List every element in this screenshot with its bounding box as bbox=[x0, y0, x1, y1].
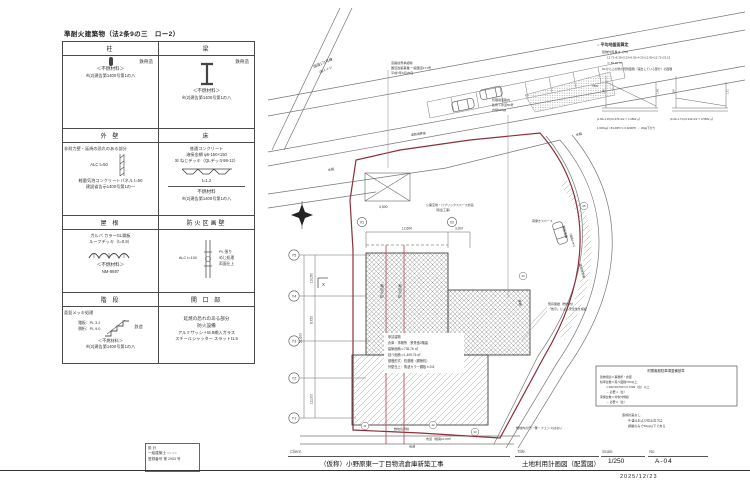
grid-x2: X2 bbox=[450, 220, 454, 224]
note-fence: 敷地内の門・塀・フェンスはない bbox=[516, 425, 562, 430]
building-text-5: 基礎形式：杭基礎（鋼管杭） bbox=[388, 358, 429, 363]
roof-cert: NM-8697 bbox=[64, 269, 157, 275]
client-label: Client. bbox=[290, 449, 302, 454]
dim-left2: 9,720 bbox=[310, 316, 314, 325]
building-text-1: 申請建物 bbox=[388, 334, 402, 339]
avg-l2: 12.72+6.35+5.23+6.92+4.23+12.90+12.72+23… bbox=[607, 56, 671, 60]
pt-23: 23 bbox=[473, 430, 477, 434]
note-sewer-1: 管理用道路内 bbox=[492, 97, 510, 102]
parking-box-l6: → 必要 0〔台〕 bbox=[606, 399, 627, 404]
grid-x1: X1 bbox=[360, 220, 364, 224]
parking-bay bbox=[365, 173, 410, 201]
site-plan: 防火区画 防火区画 申請建物 倉庫・事務所 鉄骨造2階建 建築面積＝735.76… bbox=[266, 8, 746, 448]
partition-note3: 両面仕上 bbox=[219, 262, 234, 268]
avg-l3: ＝ 83.00 ｍ bbox=[607, 61, 622, 65]
cell-column: 鉄骨造 ＜不燃材料＞ ※(2)建告第1400号第1の八 bbox=[63, 56, 158, 128]
dim-park: 4,500 bbox=[379, 205, 388, 209]
grid-y5: Y5 bbox=[292, 254, 296, 258]
note-public-2: （別途工事） bbox=[434, 207, 452, 212]
note-top-1: 道路境界承認線 bbox=[391, 60, 413, 65]
alc-wall-sketch bbox=[111, 152, 131, 178]
dim-left3: 12,000 bbox=[310, 394, 314, 404]
project-title: （仮称）小野原東一丁目物流倉庫新築工事 bbox=[320, 458, 444, 468]
wall-sketch-label: ALC t=50 bbox=[90, 162, 108, 168]
floor-line4: t=1.2 bbox=[160, 178, 253, 184]
floor-code: ※(2)建告第1400号第1の八 bbox=[160, 196, 253, 202]
boundary-site-label: 敷地境界線 bbox=[394, 426, 409, 431]
title-label: Title. bbox=[517, 449, 526, 454]
avg-title: ○ 平均地盤面算定 bbox=[597, 41, 629, 47]
cell-fire-partition: ALC t=100 PL 張り めじ処理 両面仕上 bbox=[158, 230, 254, 292]
avg-tbm: T.B.M bbox=[592, 85, 598, 88]
column-code: ※(2)建告第1400号第1の八 bbox=[64, 73, 157, 79]
stairs-sketch bbox=[103, 316, 131, 338]
beam-structure: 鉄骨造 bbox=[235, 59, 249, 66]
grading-1: 造成計画なし bbox=[622, 412, 641, 417]
beam-material: ＜不燃材料＞ bbox=[160, 88, 253, 95]
scale-underline bbox=[601, 456, 645, 457]
grid-y4: Y4 bbox=[292, 295, 296, 299]
avg-d1a: 1.60 bbox=[603, 89, 606, 94]
column-material: ＜不燃材料＞ bbox=[64, 66, 157, 73]
header-beam: 梁 bbox=[158, 42, 254, 55]
grading-2: ※ 盛土および切土高さは bbox=[628, 418, 662, 423]
header-stairs: 階 段 bbox=[63, 293, 158, 306]
stairs-code: ※(2)建告第1400号第1の八 bbox=[64, 344, 157, 350]
pt-25: 25 bbox=[582, 204, 586, 208]
no-label: No. bbox=[649, 449, 656, 454]
grid-bubbles-x: X1 X2 bbox=[357, 217, 456, 226]
cell-openings: 延焼の恐れのある部分 防火設備 アルミサッシ＋t6.8網入ガラス スチールシャッ… bbox=[158, 307, 254, 363]
no-underline bbox=[648, 456, 708, 457]
designer-stamp-box: 設 計 一級建築士 ○○ ○○ 登録番号 第 2953 号 bbox=[145, 443, 200, 472]
grading-note: 造成計画なし ※ 盛土および切土高さは 調整のみで50㎝以下である bbox=[622, 412, 665, 428]
parking-box-l3: ＝490.66/700＝0.7009〔台〕以上 bbox=[606, 384, 650, 389]
avg-d2a: 0.34 bbox=[673, 89, 676, 94]
note-wall-2: 「告示」による安全性を検証 bbox=[548, 306, 587, 311]
note-public: 公開空地・パブリックスペース計画 （別途工事） bbox=[426, 202, 474, 212]
note-top: 道路境界承認線 国道改築事業 一般国道171号 平成7年6月26日 bbox=[391, 60, 431, 75]
avg-d1b: 1.45 bbox=[657, 89, 660, 94]
dim-left-total: 51,600 bbox=[299, 333, 303, 343]
pt-22: 22 bbox=[431, 423, 435, 427]
floor-line3: ☒ ねじデッキ（QLデッキ98-12） bbox=[160, 158, 253, 164]
fire-spec-table: 準耐火建築物（法2条9の三 ロー2） 柱 梁 鉄骨造 ＜不燃材料＞ ※(2)建告… bbox=[62, 28, 255, 364]
section-mark: X bbox=[318, 278, 328, 288]
deck-profile-icon bbox=[181, 167, 233, 176]
waterway-label-1: 水路 bbox=[327, 166, 335, 172]
note-top-3: 平成7年6月26日 bbox=[391, 70, 413, 75]
cell-exterior-wall: 非耐力壁・延焼の恐れのある部分 ALC t=50 軽量気泡コンクリートパネル t… bbox=[63, 143, 158, 215]
drawing-date: 2025/12/23 bbox=[620, 474, 658, 480]
stairs-line2: 側桁：PL 9.0 bbox=[78, 327, 100, 333]
note-wall: 既存擁壁（敷地内） 「告示」による安全性を検証 bbox=[522, 301, 587, 340]
beam-code: ※(2)建告第1400号第1の八 bbox=[160, 95, 253, 101]
header-fire-partition: 防火区画壁 bbox=[158, 216, 254, 229]
cell-stairs: 亜鉛メッキ処理 踏板：PL 3.2 側桁：PL 9.0 鉄造 ＜不燃材料＞ bbox=[63, 307, 158, 363]
note-public-1: 公開空地・パブリックスペース計画 bbox=[426, 202, 474, 207]
cell-beam: 鉄骨造 ＜不燃材料＞ ※(2)建告第1400号第1の八 bbox=[158, 56, 254, 128]
roof-line2: ルーフデッキ（t=0.8） bbox=[64, 239, 157, 245]
parking-req-box: 附置義務駐車場整備基準 建物用途＝事務所・倉庫 駐車台数＝延べ面積/700以上 … bbox=[596, 366, 737, 406]
avg-c3: 1.6454㎡ / 83.00ｍ ≒ 0.0200ｍ ∴ 20㎜下がり bbox=[597, 126, 656, 130]
cell-floor: 普通コンクリート 溶接金網 φ6-150×150 ☒ ねじデッキ（QLデッキ98… bbox=[158, 143, 254, 215]
parking-box-title: 附置義務駐車場整備基準 bbox=[647, 368, 685, 373]
section-mark-label: X bbox=[322, 282, 325, 287]
note-sewer-2: 私有下水道50号 bbox=[492, 102, 513, 107]
loading-label: 荷捌きスペース bbox=[532, 218, 553, 223]
fire-line-label-2: 防火区画 bbox=[397, 284, 402, 298]
parking-box-l4: → 必要 1〔台〕 bbox=[606, 389, 627, 394]
avg-l1: 建物外周長さ（ｍ） bbox=[602, 49, 630, 54]
title-underline bbox=[515, 456, 599, 457]
note-top-2: 国道改築事業 一般国道171号 bbox=[391, 65, 431, 70]
boundary-road-label: 道路境界線 bbox=[411, 130, 427, 137]
avg-c2: (0.34+1.71)×0.344×1/2 ≒ 0.5832 ㎡ bbox=[670, 117, 713, 121]
i-beam-icon bbox=[199, 62, 215, 86]
header-floor: 床 bbox=[158, 129, 254, 142]
parking-box-l1: 建物用途＝事務所・倉庫 bbox=[600, 374, 632, 379]
fire-line-label-1: 防火区画 bbox=[379, 284, 384, 298]
grid-y2: Y2 bbox=[292, 377, 296, 381]
grading-3: 調整のみで50㎝以下である bbox=[628, 423, 665, 428]
grid-y1: Y1 bbox=[292, 417, 296, 421]
dev-road-width: （幅員6.0ｍ） bbox=[568, 231, 577, 249]
pt-24: 24 bbox=[521, 274, 525, 278]
stairs-tag: 鉄造 bbox=[134, 324, 142, 330]
avg-l4: GLから上の壁の見附面積（露出している部分）の面積 bbox=[602, 66, 672, 71]
parking-box-l5: 荷捌台数＝対象外規模 bbox=[600, 394, 629, 399]
parking-box-l2: 駐車台数＝延べ面積/700以上 bbox=[600, 379, 638, 384]
avg-d2b: 1.71 bbox=[727, 89, 730, 94]
dim-left1: 13,050 bbox=[310, 273, 314, 283]
header-exterior-wall: 外 壁 bbox=[63, 129, 158, 142]
drawing-title: 土地利用計画図（配置図） bbox=[522, 458, 600, 468]
wall-line2: 建設省告示1400号第1の一 bbox=[64, 184, 157, 190]
roof-material: ＜不燃材料＞ bbox=[64, 262, 157, 269]
sidewalk-label: 歩道 bbox=[409, 444, 416, 448]
building-text-2: 倉庫・事務所 鉄骨造2階建 bbox=[388, 340, 429, 345]
square-steel-tube-icon bbox=[109, 57, 113, 66]
building-text-4: 延べ面積＝1,405.76 ㎡ bbox=[388, 352, 421, 357]
opening-line4: スチールシャッター スラットt1.5 bbox=[160, 336, 253, 342]
opening-line2: 防火設備 bbox=[160, 323, 253, 330]
north-arrow-icon bbox=[291, 201, 313, 229]
titleblock-rule bbox=[0, 470, 750, 471]
note-sewer: 管理用道路内 私有下水道50号 内径600㎜ bbox=[492, 97, 513, 112]
dim-top2: 3,200 bbox=[455, 227, 463, 231]
column-structure: 鉄骨造 bbox=[139, 59, 153, 66]
note-sewer-3: 内径600㎜ bbox=[492, 107, 506, 112]
scale-label: Scale. bbox=[602, 449, 614, 454]
partition-wall-sketch bbox=[200, 238, 216, 280]
building-text-3: 建築面積＝735.76 ㎡ bbox=[388, 346, 419, 351]
scale-value: 1/250 bbox=[608, 458, 624, 465]
avg-c1: (1.60+1.45)×0.276×1/2 ≒ 1.0862 ㎡ bbox=[597, 117, 640, 121]
drawing-sheet: 準耐火建築物（法2条9の三 ロー2） 柱 梁 鉄骨造 ＜不燃材料＞ ※(2)建告… bbox=[0, 0, 750, 500]
project-underline bbox=[288, 456, 510, 457]
stamp-line3: 登録番号 第 2953 号 bbox=[148, 457, 197, 463]
partition-left-label: ALC t=100 bbox=[179, 256, 197, 262]
city-road-label: 市道（幅員10.0ｍ） bbox=[426, 436, 453, 441]
building-text-6: 外壁仕上：角波カラー鋼板 t=0.8 bbox=[388, 364, 435, 369]
header-roof: 屋 根 bbox=[63, 216, 158, 229]
partition-note2: めじ処理 bbox=[219, 256, 234, 262]
waterway-label-2: 水路 bbox=[575, 131, 583, 137]
header-openings: 開 口 部 bbox=[158, 293, 254, 306]
dim-top1: 12,600 bbox=[402, 227, 412, 231]
drawing-number: A-04 bbox=[655, 458, 673, 465]
roof-deck-icon bbox=[88, 248, 134, 260]
fire-table-title: 準耐火建築物（法2条9の三 ロー2） bbox=[64, 28, 255, 38]
note-wall-1: 既存擁壁（敷地内） bbox=[548, 301, 575, 306]
cell-roof: ガルバ カラーGL鋼板 ルーフデッキ（t=0.8） ＜不燃材料＞ NM-8697 bbox=[63, 230, 158, 292]
header-column: 柱 bbox=[63, 42, 158, 55]
opening-line1: 延焼の恐れのある部分 bbox=[160, 316, 253, 323]
pt-21: 21 bbox=[363, 424, 367, 428]
grid-y3: Y3 bbox=[292, 340, 296, 344]
